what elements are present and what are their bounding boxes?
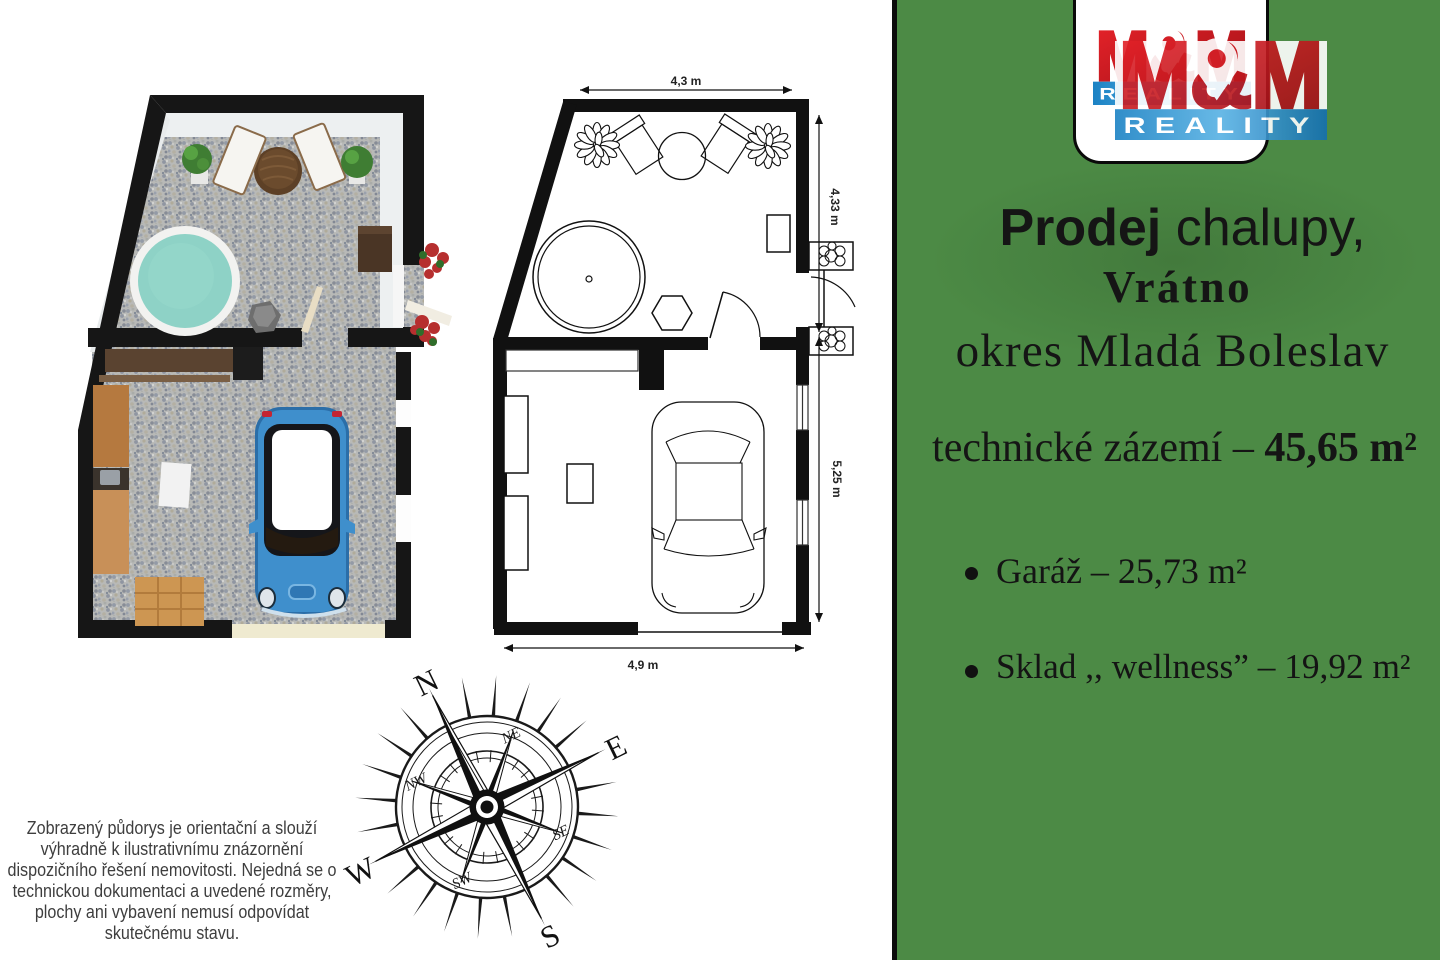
svg-text:E: E <box>600 727 632 767</box>
svg-text:4,3 m: 4,3 m <box>671 74 702 88</box>
svg-text:W: W <box>340 849 382 894</box>
svg-text:5,25 m: 5,25 m <box>830 460 844 497</box>
svg-text:4,33 m: 4,33 m <box>828 188 842 225</box>
svg-text:4,9 m: 4,9 m <box>628 658 659 672</box>
svg-text:NW: NW <box>402 770 431 795</box>
svg-text:S: S <box>534 916 565 955</box>
svg-text:N: N <box>409 662 444 703</box>
